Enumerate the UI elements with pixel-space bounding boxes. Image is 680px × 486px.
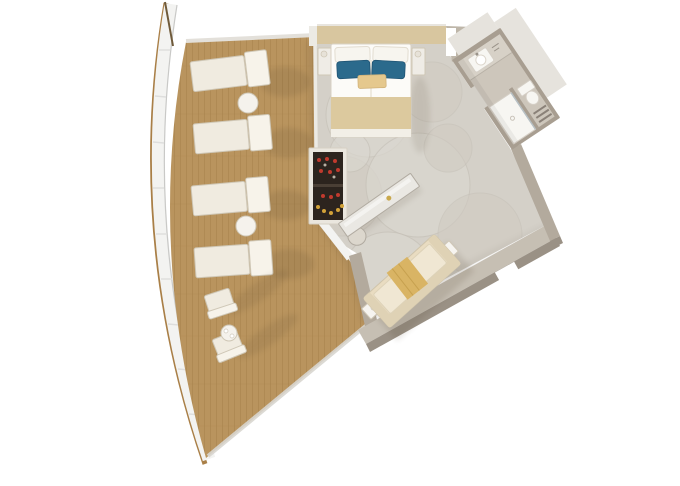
bottle [316, 205, 320, 209]
headboard-wall [317, 26, 446, 44]
bottle [329, 195, 333, 199]
bottle [333, 176, 336, 179]
bottle [328, 170, 332, 174]
lounger-backrest [248, 114, 273, 151]
top-wall-left-end [309, 26, 317, 46]
bottle [336, 168, 340, 172]
bottle [340, 204, 344, 208]
lounger-cushion [191, 181, 247, 216]
bottle [333, 159, 337, 163]
table-cup [230, 334, 234, 338]
railing-tick [155, 96, 166, 97]
table-cup [224, 329, 228, 333]
railing-tick [168, 324, 179, 325]
floor-plan-rendering [0, 0, 680, 486]
bottle [319, 169, 323, 173]
lounger-backrest [244, 50, 270, 87]
lounger-cushion [193, 119, 249, 154]
floor-plan [0, 0, 680, 486]
lounger-backrest [249, 240, 273, 276]
bed-shadow [410, 77, 430, 153]
bottle [325, 157, 329, 161]
lounger-backrest [246, 176, 271, 213]
bottle [329, 211, 333, 215]
cushion [358, 75, 386, 89]
lounger-cushion [194, 244, 250, 278]
bottle [317, 158, 321, 162]
minibar-cabinet [309, 148, 347, 224]
bistro-table [221, 325, 237, 341]
bed-runner [331, 97, 411, 131]
carpet-motif [424, 124, 472, 172]
bottle [324, 164, 327, 167]
bottle [322, 209, 326, 213]
lounger-side-table-2 [236, 216, 256, 236]
bottle [336, 208, 340, 212]
glass-wall [315, 44, 316, 148]
bottle [336, 193, 340, 197]
lounger-cushion [190, 55, 247, 91]
bottle [321, 194, 325, 198]
bedside-lamp [415, 51, 421, 57]
bedside-lamp [321, 51, 327, 57]
minibar-shelf-divider [313, 184, 343, 187]
bed-foot-edge [331, 129, 411, 137]
bed-bench-cushion [358, 75, 386, 89]
bed-area [318, 44, 430, 153]
railing-tick [153, 142, 164, 143]
lounger-side-table-1 [238, 93, 258, 113]
